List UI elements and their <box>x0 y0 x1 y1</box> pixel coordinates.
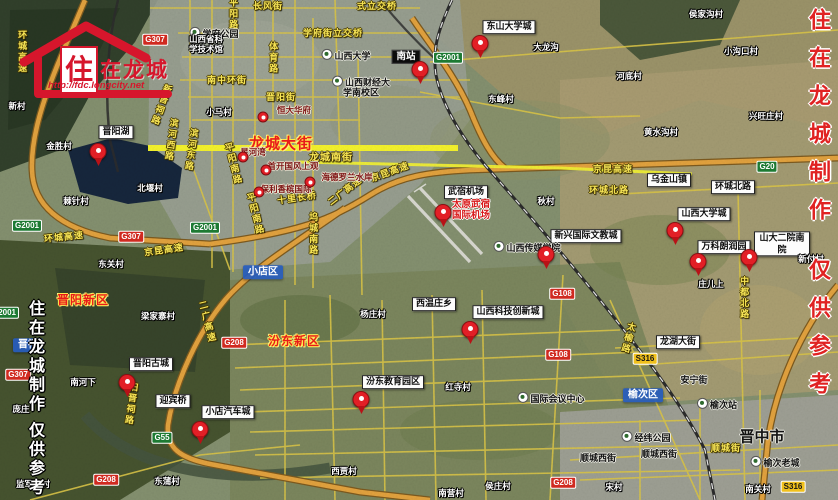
map-label-badge-s: S316 <box>781 481 806 493</box>
poi-icon <box>332 76 343 87</box>
map-label-whitebox: 东山大学城 <box>482 20 535 34</box>
map-label-roadtext: 南中环街 <box>207 75 247 85</box>
map-label-village: 大龙沟 <box>533 43 559 53</box>
marker-haide <box>305 177 316 188</box>
yuci-district-label: 榆次区 <box>623 388 663 402</box>
logo-url: http://fdc.longcity.net <box>48 80 144 91</box>
map-label-placedark: 学府公园 <box>189 27 238 39</box>
map-label-village: 南河下 <box>70 378 96 388</box>
longcheng-avenue-label: 龙城大街 <box>249 135 313 152</box>
map-label-village: 金胜村 <box>46 142 72 152</box>
map-label-placedark: 顺城西街 <box>580 453 616 463</box>
map-label-village: 小马村 <box>206 108 232 118</box>
marker-vanke-langrun <box>690 253 707 270</box>
watermark-left: 住在龙城制作 仅供参考 <box>22 300 46 497</box>
map-label-roadtext: 式立交桥 <box>357 1 397 11</box>
watermark-right: 住在龙城制作 仅供参考 <box>802 8 834 410</box>
pin-icon <box>462 321 479 338</box>
map-label-badge-gx: G55 <box>151 432 172 444</box>
marker-auto-city <box>192 421 209 438</box>
map-label-village: 东蒲村 <box>154 477 180 487</box>
poi-icon <box>189 27 200 38</box>
map-label-badge-g: G307 <box>118 231 144 243</box>
pin-icon <box>353 391 370 408</box>
map-label-roadtext: 顺城街 <box>711 443 741 453</box>
map-label-placedark: 榆次老城 <box>750 456 799 468</box>
map-label-village: 小沟口村 <box>724 47 758 57</box>
map-label-badge-gx: G2001 <box>433 52 463 64</box>
pin-icon <box>741 249 758 266</box>
satellite-map-canvas: 环城高速长风街平阳路式立交桥学府街立交桥体育路南中环街晋阳街新晋祠路滨河西路滨河… <box>0 0 838 500</box>
map-label-badge-s: S316 <box>633 353 658 365</box>
marker-jinyang-lake <box>90 143 107 160</box>
map-label-whitebox: 小店汽车城 <box>201 405 254 419</box>
map-label-whitebox: 乌金山镇 <box>647 173 691 187</box>
dot-icon <box>305 177 316 188</box>
map-label-roadtext: 坞城南路 <box>308 212 318 256</box>
pin-icon <box>435 204 452 221</box>
marker-scitech-city <box>462 321 479 338</box>
map-label-roadtext: 京昆高速 <box>593 164 633 174</box>
marker-xinghewan <box>238 152 249 163</box>
fendong-newdistrict-label: 汾东新区 <box>268 335 320 349</box>
map-label-village: 东关村 <box>98 260 124 270</box>
dot-icon <box>258 112 269 123</box>
map-label-badge-gx: G2001 <box>0 307 19 319</box>
marker-wenjiao-city <box>538 246 555 263</box>
map-label-whitebox: 西温庄乡 <box>412 297 456 311</box>
pin-icon <box>90 143 107 160</box>
poi-icon <box>517 392 528 403</box>
map-label-whitebox: 新兴国际文教城 <box>550 229 621 243</box>
map-label-badge-g: G208 <box>550 477 576 489</box>
map-label-badge-g: G108 <box>549 288 575 300</box>
map-label-village: 兴旺庄村 <box>749 112 783 122</box>
poi-icon <box>321 49 332 60</box>
map-label-roadtext: 学府街立交桥 <box>303 28 363 38</box>
map-label-village: 秋村 <box>537 197 554 207</box>
map-label-roadtext: 十里长桥 <box>276 190 317 206</box>
marker-dongshan-univ-town <box>472 35 489 52</box>
dot-icon <box>238 152 249 163</box>
map-label-village: 侯家沟村 <box>689 10 723 20</box>
map-label-whitebox: 汾东教育园区 <box>362 375 424 389</box>
map-label-badge-gx: G2001 <box>190 222 220 234</box>
marker-hengda <box>258 112 269 123</box>
map-label-roadtext: 环城高速 <box>44 230 85 244</box>
map-label-whitebox: 迎宾桥 <box>155 394 190 408</box>
map-label-village: 棘针村 <box>63 197 89 207</box>
map-label-village: 南营村 <box>438 489 464 499</box>
map-label-badge-g: G108 <box>545 349 571 361</box>
dot-icon <box>261 165 272 176</box>
marker-baoli <box>254 187 265 198</box>
map-label-roadtext: 环城北路 <box>589 185 629 195</box>
poi-icon <box>621 431 632 442</box>
map-label-village: 山西省科 学技术馆 <box>189 35 223 55</box>
jinyang-newdistrict-label: 晋阳新区 <box>57 294 109 308</box>
map-label-roadtext: 京昆高速 <box>143 242 184 258</box>
marker-shanda-hospital <box>741 249 758 266</box>
map-label-roadtext: 滨河东路 <box>183 127 199 172</box>
map-label-village: 北堰村 <box>137 184 163 194</box>
map-label-project: 首开国风上观 <box>267 162 318 172</box>
map-label-roadtext: 二广高速 <box>197 299 218 344</box>
map-label-whitebox: 武宿机场 <box>444 185 488 199</box>
dot-icon <box>254 187 265 198</box>
pin-icon <box>667 222 684 239</box>
marker-south-station <box>412 61 429 78</box>
map-label-roadtext: 中都北路 <box>739 276 749 320</box>
map-label-village: 杨庄村 <box>360 310 386 320</box>
map-label-whitebox: 龙湖大街 <box>656 335 700 349</box>
map-label-placedark: 顺城西街 <box>641 449 677 459</box>
pin-icon <box>119 374 136 391</box>
marker-wusu-airport <box>435 204 452 221</box>
pin-icon <box>192 421 209 438</box>
map-label-roadtext: 京昆高速 <box>369 160 410 183</box>
map-label-placedark: 榆次站 <box>697 398 737 410</box>
map-label-roadtext: 滨河西路 <box>163 117 179 162</box>
pin-icon <box>538 246 555 263</box>
map-label-whitebox: 环城北路 <box>711 180 755 194</box>
poi-icon <box>493 241 504 252</box>
map-label-roadtext: 长风街 <box>253 1 283 11</box>
map-label-village: 西贾村 <box>331 467 357 477</box>
map-label-placedark: 经纬公园 <box>621 431 670 443</box>
wusu-airport-label: 太原武宿 国际机场 <box>452 200 490 222</box>
map-label-badge-g: G208 <box>221 337 247 349</box>
map-label-placedark: 山西大学 <box>321 49 370 61</box>
marker-shanxi-univ-town <box>667 222 684 239</box>
map-label-badge-gx: G20 <box>756 161 777 173</box>
map-label-roadtext: 平阳路 <box>228 0 238 31</box>
map-label-roadtext: 二广高速 <box>326 175 364 208</box>
map-label-roadtext: 龙城南街 <box>309 152 353 164</box>
map-label-badge-g: G208 <box>93 474 119 486</box>
pin-icon <box>472 35 489 52</box>
map-label-whitebox: 山西大学城 <box>677 207 730 221</box>
marker-jinyang-gucheng <box>119 374 136 391</box>
marker-fendong-edu <box>353 391 370 408</box>
map-label-roadtext: 体育路 <box>268 42 278 75</box>
map-label-project: 恒大华府 <box>277 106 311 116</box>
map-label-roadtext: 太榆路 <box>619 321 637 356</box>
marker-shoukai <box>261 165 272 176</box>
map-label-village: 侯庄村 <box>485 482 511 492</box>
map-label-roadtext: 晋阳街 <box>266 92 296 102</box>
map-label-village: 新村 <box>8 102 25 112</box>
site-logo: 住 在龙城 http://fdc.longcity.net <box>18 18 183 100</box>
map-label-project: 海德罗兰水岸 <box>321 173 372 183</box>
jinyang-lake-label: 晋阳湖 <box>98 125 133 139</box>
map-label-village: 红寺村 <box>445 383 471 393</box>
map-label-village: 东峰村 <box>488 95 514 105</box>
map-label-placedark: 安宁街 <box>680 375 707 385</box>
map-label-village: 河底村 <box>616 72 642 82</box>
jinzhong-city-label: 晋中市 <box>739 428 784 445</box>
xiaodian-district-label: 小店区 <box>243 265 283 279</box>
map-label-village: 庄儿上 <box>698 280 724 290</box>
map-label-village: 宋村 <box>605 483 622 493</box>
map-label-whitebox: 晋阳古城 <box>129 357 173 371</box>
map-label-placedark: 国际会议中心 <box>517 392 584 404</box>
map-label-roadtext: 平阳南路 <box>223 141 244 186</box>
poi-icon <box>750 456 761 467</box>
pin-icon <box>690 253 707 270</box>
map-label-village: 南关村 <box>745 485 771 495</box>
map-label-roadtext: 平阳南路 <box>245 191 266 236</box>
pin-icon <box>412 61 429 78</box>
map-label-village: 梁家寨村 <box>141 312 175 322</box>
map-label-badge-gx: G2001 <box>12 220 42 232</box>
map-label-whitebox: 山西科技创新城 <box>472 305 543 319</box>
map-label-village: 黄水沟村 <box>644 128 678 138</box>
map-label-placedark: 山西财经大 学南校区 <box>332 76 390 99</box>
poi-icon <box>697 398 708 409</box>
